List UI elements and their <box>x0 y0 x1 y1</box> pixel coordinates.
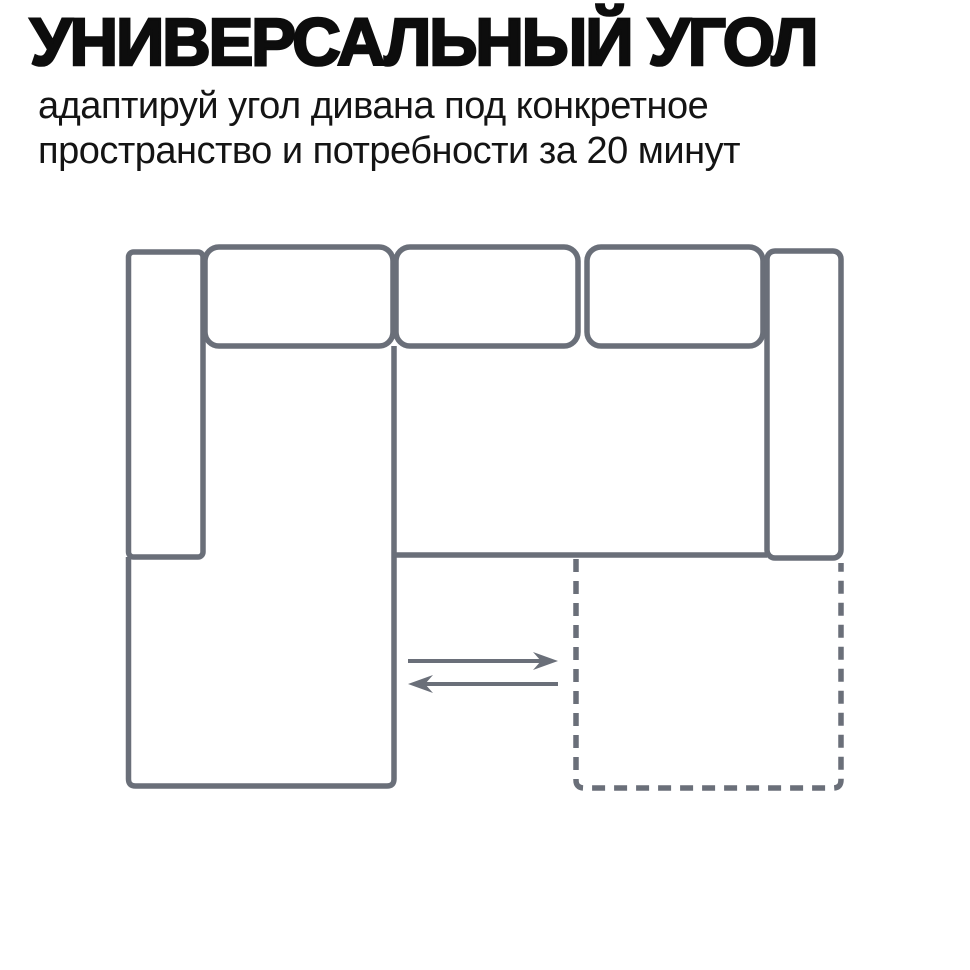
page: УНИВЕРСАЛЬНЫЙ УГОЛ адаптируй угол дивана… <box>0 0 970 970</box>
subtitle-line-1: адаптируй угол дивана под конкретное <box>38 84 970 129</box>
diagram-strokes <box>129 247 842 788</box>
header: УНИВЕРСАЛЬНЫЙ УГОЛ адаптируй угол дивана… <box>0 0 970 174</box>
back-cushion-2-shape <box>396 247 578 346</box>
subtitle: адаптируй угол дивана под конкретное про… <box>38 84 970 174</box>
move-arrows <box>408 661 558 684</box>
corner-chaise-outline <box>129 346 395 786</box>
page-title: УНИВЕРСАЛЬНЫЙ УГОЛ <box>30 12 970 74</box>
right-armrest-shape <box>767 251 841 558</box>
back-cushion-3-shape <box>587 247 763 346</box>
arrow-heads <box>408 652 558 693</box>
back-cushion-1-shape <box>205 247 393 346</box>
alternate-corner-position-dashed <box>576 559 841 788</box>
left-armrest-shape <box>129 252 204 557</box>
subtitle-line-2: пространство и потребности за 20 минут <box>38 129 970 174</box>
